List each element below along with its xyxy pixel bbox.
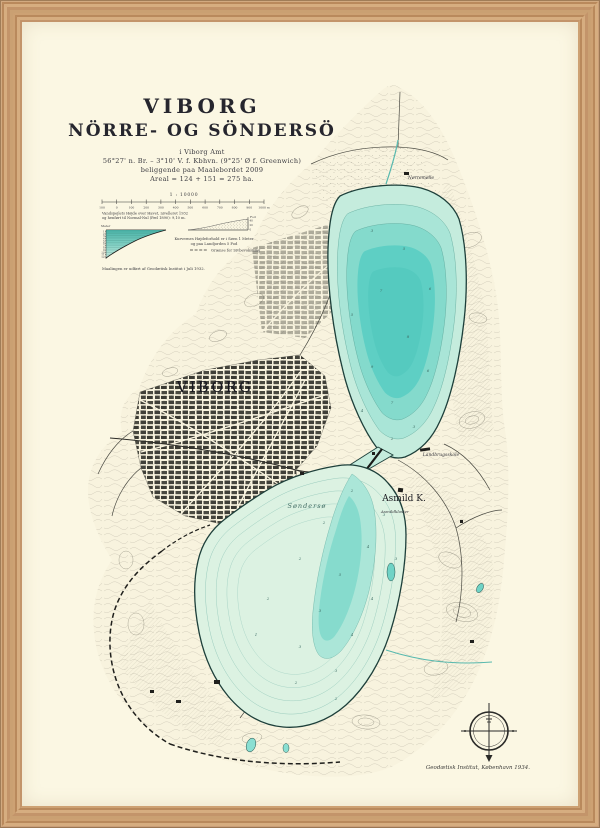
meter-axis-label: Meter: [101, 224, 111, 228]
lake-label: Søndersø: [288, 502, 327, 510]
svg-text:100: 100: [99, 206, 105, 210]
svg-text:40: 40: [250, 219, 254, 223]
svg-text:2: 2: [334, 696, 338, 701]
fod-axis-label: Fod: [250, 215, 256, 219]
water-note-2: og henført til Normal-Nul (Pæl 1890): 9,…: [102, 216, 186, 220]
credit-line: Geodætisk Institut, København 1934.: [426, 765, 530, 771]
dashed-note: Grænse for Sivbevoksning: [211, 248, 261, 252]
svg-text:0: 0: [250, 228, 252, 232]
svg-text:400: 400: [173, 206, 179, 210]
title-details: i Viborg Amt 56°27' n. Br. – 3°10' V. f.…: [62, 148, 342, 184]
svg-text:2: 2: [294, 680, 298, 685]
map-paper: 3567589674322324352432431322 VIBORG Asmi…: [22, 22, 578, 806]
svg-text:3: 3: [335, 668, 338, 673]
map-title: VIBORG: [62, 94, 342, 118]
svg-text:2: 2: [390, 436, 394, 441]
title-detail-line: Areal = 124 + 151 = 275 ha.: [62, 175, 342, 184]
curve-note-2: og paa Landjorden 5 Fod: [191, 242, 238, 246]
elevation-profile: Fod 40200: [188, 215, 256, 232]
svg-text:3: 3: [371, 228, 374, 233]
svg-text:600: 600: [202, 206, 208, 210]
svg-text:2: 2: [350, 488, 354, 493]
south-arrow: [486, 755, 493, 762]
svg-text:8: 8: [407, 334, 410, 339]
svg-text:200: 200: [143, 206, 149, 210]
legend: 1 : 10000 100010020030040050060070080090…: [98, 188, 278, 278]
svg-text:4: 4: [350, 632, 354, 637]
curve-note-1: Kurvernes Højdeforhold er i Søen 1 Meter: [174, 237, 253, 241]
svg-text:100: 100: [129, 206, 135, 210]
water-note-1: Vandspejlets Højde over Havet, nivellere…: [101, 212, 188, 216]
frame-left: [0, 0, 22, 828]
title-detail-line: beliggende paa Maalebordet 2009: [62, 166, 342, 175]
svg-text:700: 700: [217, 206, 223, 210]
svg-text:900: 900: [246, 206, 252, 210]
svg-text:9: 9: [371, 364, 374, 369]
city-label: VIBORG: [176, 380, 254, 396]
scale-bar: 10001002003004005006007008009001000 m: [99, 200, 270, 210]
frame-top: [0, 0, 600, 22]
svg-text:1: 1: [255, 632, 258, 637]
svg-text:4: 4: [360, 408, 364, 413]
asmild-church: [398, 488, 404, 493]
svg-text:500: 500: [187, 206, 193, 210]
svg-text:3: 3: [395, 556, 398, 561]
svg-text:2: 2: [322, 520, 326, 525]
title-block: VIBORG NÖRRE- OG SÖNDERSÖ i Viborg Amt 5…: [62, 94, 342, 184]
svg-text:800: 800: [232, 206, 238, 210]
svg-text:7: 7: [380, 288, 383, 293]
svg-text:5: 5: [339, 572, 342, 577]
compass-rose: [461, 703, 517, 762]
mill-label: Nørremølle: [407, 175, 434, 181]
frame-bottom: [0, 806, 600, 828]
depth-profile: Meter 123456789101112: [101, 224, 166, 259]
svg-text:5: 5: [351, 312, 354, 317]
svg-text:1000 m: 1000 m: [258, 206, 270, 210]
frame-right: [578, 0, 600, 828]
pond: [387, 563, 395, 581]
pond: [283, 744, 289, 753]
title-detail-line: 56°27' n. Br. – 3°10' V. f. Kbhvn. (9°25…: [62, 157, 342, 166]
map-subtitle: NÖRRE- OG SÖNDERSÖ: [62, 121, 342, 141]
svg-text:7: 7: [391, 400, 394, 405]
svg-text:6: 6: [429, 286, 432, 291]
svg-text:5: 5: [403, 246, 406, 251]
svg-text:0: 0: [116, 206, 118, 210]
svg-text:4: 4: [366, 544, 370, 549]
svg-text:3: 3: [319, 608, 322, 613]
svg-text:300: 300: [158, 206, 164, 210]
svg-text:20: 20: [250, 223, 254, 227]
svg-text:2: 2: [298, 556, 302, 561]
svg-text:2: 2: [266, 596, 270, 601]
title-detail-line: i Viborg Amt: [62, 148, 342, 157]
church-label: Asmild K.: [381, 494, 426, 504]
scale-label: 1 : 10000: [170, 192, 199, 198]
kloster-label: Asmildkloster: [380, 509, 410, 514]
svg-text:12: 12: [101, 255, 105, 259]
framed-map-poster: 3567589674322324352432431322 VIBORG Asmi…: [0, 0, 600, 828]
mill-building: [404, 172, 409, 175]
svg-text:3: 3: [299, 644, 302, 649]
svg-text:3: 3: [413, 424, 416, 429]
survey-note: Maalingen er udført af Geodætisk Institu…: [102, 266, 205, 271]
svg-text:6: 6: [427, 368, 430, 373]
school-label: Landbrugsskole: [422, 452, 460, 458]
svg-text:4: 4: [370, 596, 374, 601]
